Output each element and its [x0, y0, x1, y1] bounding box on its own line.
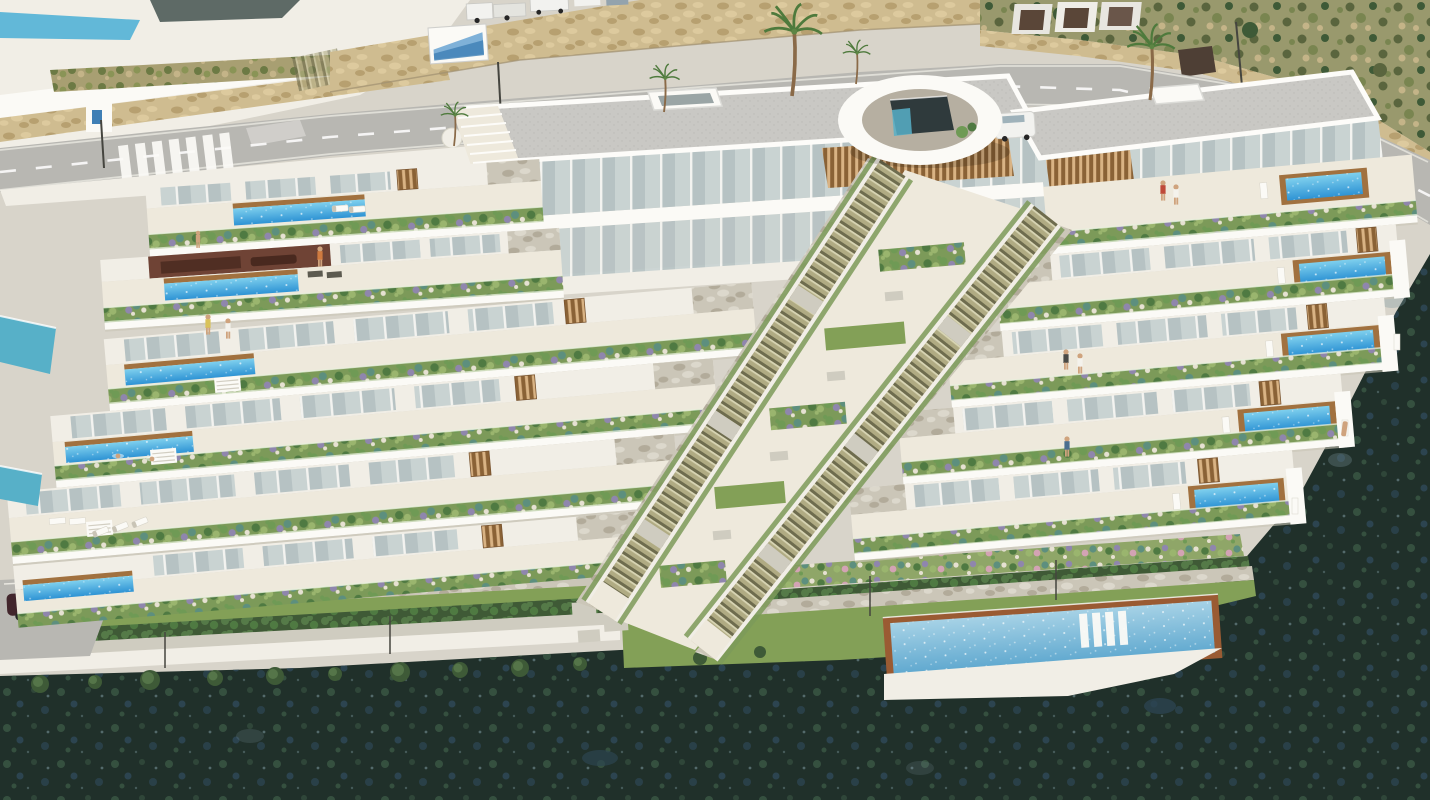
skylight-b [1150, 84, 1204, 104]
billboard [428, 24, 488, 64]
swimmer [112, 454, 124, 459]
architectural-render [0, 0, 1430, 800]
pavilion-lift [890, 96, 954, 136]
garage-buildings [1011, 2, 1141, 34]
median-planter [442, 128, 462, 148]
swimmer [146, 457, 158, 462]
render-viewport [0, 0, 1430, 800]
pergola [1178, 46, 1216, 77]
